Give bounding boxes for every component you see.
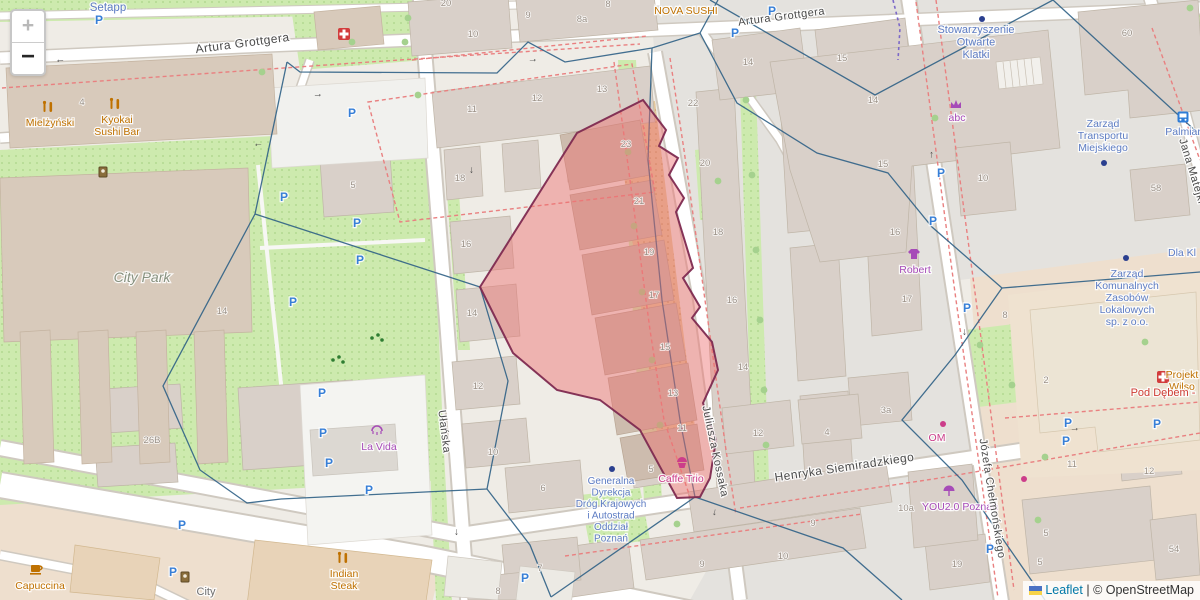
house-number: 10 [468,29,479,40]
poi-dot [1101,160,1107,166]
house-number: 11 [467,104,477,115]
oneway-arrow: → [960,327,972,338]
parking-icon: P [1153,417,1161,431]
house-number: 15 [837,53,848,64]
poi-label: City Park [114,269,172,285]
parking-icon: P [178,518,186,532]
oneway-arrow: → [709,507,722,519]
house-number: 13 [668,388,679,399]
poi-dot [940,421,946,427]
cafe-icon [30,565,42,575]
hospital-icon [338,28,350,40]
house-number: 8 [1002,310,1007,321]
house-number: 9 [810,518,815,529]
house-number: 2 [1043,375,1048,386]
tree-icon [715,178,722,185]
oneway-arrow: → [1069,422,1080,434]
house-number: 20 [441,0,452,9]
house-number: 8a [577,14,588,25]
house-number: 8 [495,586,500,597]
parking-icon: P [937,166,945,180]
house-number: 14 [467,308,478,319]
poi-dot [1021,476,1027,482]
oneway-arrow: → [253,139,264,151]
zoom-in-button[interactable]: + [12,11,44,43]
parking-icon: P [353,216,361,230]
house-number: 23 [621,139,632,150]
house-number: 12 [473,381,484,392]
ukraine-flag-icon [1029,586,1042,595]
poi-label: OM [929,432,946,444]
ticket-icon [99,167,107,177]
house-number: 54 [1169,544,1180,555]
parking-icon: P [356,253,364,267]
poi-label: Palmiarn [1165,126,1200,138]
zoom-out-button[interactable]: − [12,43,44,74]
house-number: 14 [868,95,879,106]
oneway-arrow: → [452,527,464,538]
bus-icon [1178,112,1189,123]
house-number: 12 [1144,466,1155,477]
house-number: 5 [1043,528,1048,539]
tree-icon [977,342,984,349]
oneway-arrow: → [467,165,479,176]
parking-icon: P [169,565,177,579]
parking-icon: P [1062,434,1070,448]
house-number: 9 [525,10,530,21]
ticket-icon [181,572,189,582]
poi-label: Capuccina [15,580,65,592]
house-number: 10 [488,447,499,458]
poi-label: Caffe Trio [658,473,703,485]
tree-icon [761,387,768,394]
poi-dot [609,466,615,472]
tree-icon [415,92,422,99]
house-number: 18 [713,227,724,238]
tree-icon [763,442,770,449]
parking-icon: P [731,26,739,40]
attribution-bar: Leaflet | © OpenStreetMap [1023,581,1200,600]
tree-icon [749,172,756,179]
house-number: 16 [461,239,472,250]
parking-icon: P [963,301,971,315]
house-number: 17 [649,290,660,301]
house-number: 15 [878,159,889,170]
poi-label: IndianSteak [330,568,359,592]
oneway-arrow: → [312,89,323,101]
house-number: 5 [648,464,653,475]
tree-icon [349,39,356,46]
house-number: 21 [634,196,645,207]
map-canvas[interactable]: PPPPPPPPPPPPPPPPPPPPPPP →→→→→→→→→→→→ 420… [0,0,1200,600]
poi-label: abc [949,112,966,124]
house-number: 12 [753,428,764,439]
leaflet-link[interactable]: Leaflet [1045,583,1083,597]
parking-icon: P [521,571,529,585]
oneway-arrow: → [527,53,538,65]
poi-dot [979,16,985,22]
parking-icon: P [929,214,937,228]
parking-icon: P [325,456,333,470]
house-number: 17 [902,294,913,305]
tree-icon [1042,454,1049,461]
house-number: 8 [605,0,610,10]
house-number: 5 [1037,557,1042,568]
house-number: 3a [881,405,892,416]
oneway-arrow: → [55,55,66,67]
tree-icon [674,521,681,528]
house-number: 5 [350,180,355,191]
house-number: 16 [890,227,901,238]
oneway-arrow: → [925,149,937,160]
parking-icon: P [280,190,288,204]
house-number: 16 [727,295,738,306]
poi-label: Mielżyński [26,117,74,129]
house-number: 10 [978,173,989,184]
tree-icon [259,69,266,76]
tree-icon [1187,5,1194,12]
parking-icon: P [365,483,373,497]
tree-icon [757,317,764,324]
tree-icon [402,39,409,46]
tree-icon [743,97,750,104]
house-number: 18 [455,173,466,184]
leaflet-map[interactable]: PPPPPPPPPPPPPPPPPPPPPPP →→→→→→→→→→→→ 420… [0,0,1200,600]
poi-label: Setapp [90,2,126,14]
house-number: 4 [824,427,829,438]
tree-icon [932,115,939,122]
poi-label: La Vida [361,441,397,453]
house-number: 58 [1151,183,1162,194]
house-number: 60 [1122,28,1133,39]
house-number: 4 [79,97,84,108]
tree-icon [1009,382,1016,389]
poi-label: Pod Dębem - [1131,387,1196,399]
house-number: 26B [144,435,161,446]
parking-icon: P [319,426,327,440]
parking-icon: P [348,106,356,120]
house-number: 12 [532,93,543,104]
house-number: 20 [700,158,711,169]
tree-icon [753,247,760,254]
house-number: 7 [537,563,542,574]
house-number: 22 [688,98,699,109]
house-number: 10a [898,503,915,514]
house-number: 14 [738,362,749,373]
poi-label: Dla Kl [1168,247,1196,259]
zoom-control: + − [10,9,46,76]
house-number: 11 [1067,459,1077,470]
poi-label: Robert [899,264,931,276]
house-number: 13 [597,84,608,95]
attribution-separator: | [1083,583,1093,597]
house-number: 14 [217,306,228,317]
house-number: 10 [778,551,789,562]
parking-icon: P [318,386,326,400]
tree-icon [1035,517,1042,524]
parking-icon: P [986,542,994,556]
parking-icon: P [289,295,297,309]
poi-label: City [197,586,216,598]
house-number: 19 [644,247,655,258]
poi-dot [1123,255,1129,261]
house-number: 6 [540,483,545,494]
house-number: 19 [952,559,963,570]
tree-icon [405,15,412,22]
house-number: 14 [743,57,754,68]
parking-icon: P [95,13,103,27]
poi-label: NOVA SUSHI [654,5,717,17]
house-number: 15 [660,342,671,353]
house-number: 9 [699,559,704,570]
house-number: 11 [677,423,687,434]
tree-icon [1142,339,1149,346]
osm-copyright: © OpenStreetMap [1093,583,1194,597]
